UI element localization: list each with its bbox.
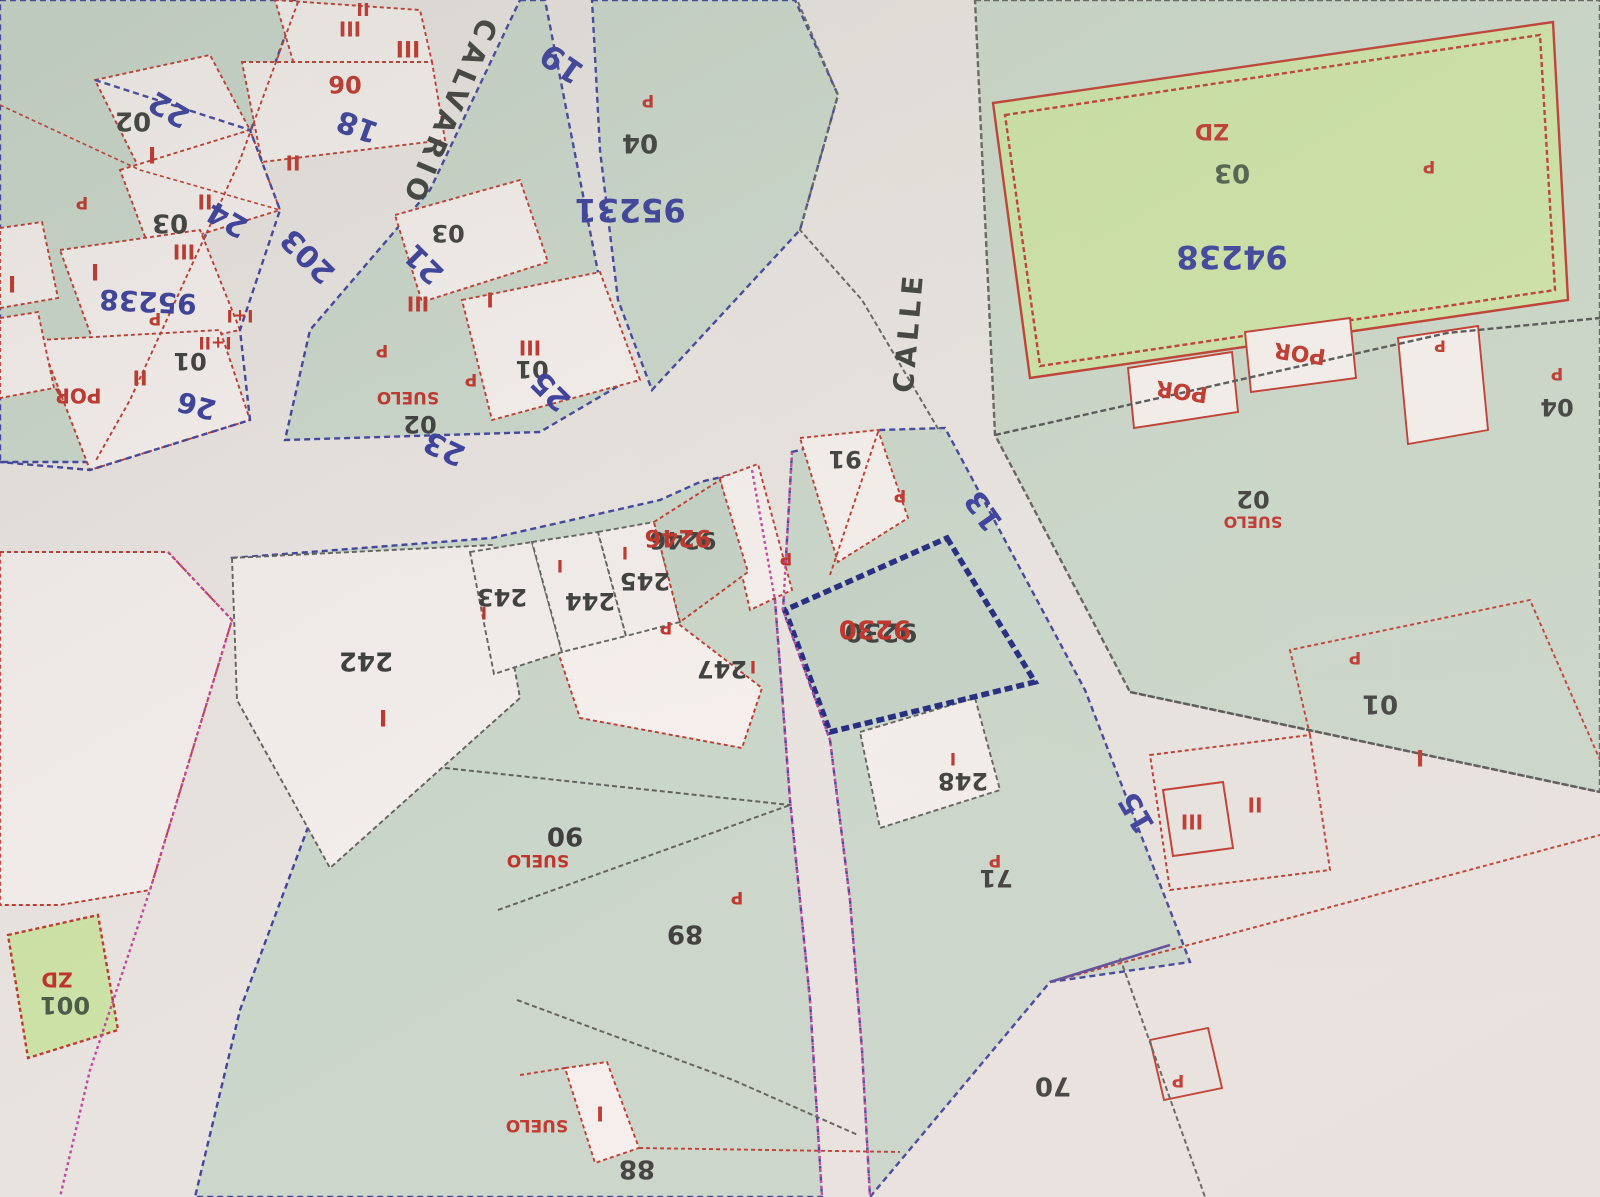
label-94238: 94238	[1176, 238, 1287, 276]
label-06: 06	[328, 70, 361, 98]
label-03: 03	[152, 208, 188, 238]
label-i: I	[950, 748, 956, 768]
label-i: I	[750, 656, 756, 676]
label-244: 244	[565, 587, 615, 615]
label-70: 70	[1035, 1071, 1071, 1101]
label-03: 03	[431, 219, 464, 247]
label-ii: II	[356, 0, 369, 19]
label-p: P	[465, 369, 477, 389]
label-89: 89	[667, 919, 703, 949]
label-01: 01	[1362, 689, 1398, 719]
label-02: 02	[1236, 485, 1269, 513]
label-95238: 95238	[98, 282, 197, 320]
label-i: I	[596, 1102, 603, 1126]
label-p: P	[660, 617, 672, 637]
label-i: I	[557, 555, 563, 575]
label-i: I	[622, 542, 628, 562]
label-i+ii: I+II	[198, 332, 231, 352]
label-p: P	[1434, 337, 1446, 356]
label-i: I	[486, 288, 493, 312]
label-9246: 9246	[645, 524, 712, 552]
label-por: POR	[54, 384, 101, 408]
label-ii: II	[133, 366, 148, 390]
label-i: I	[8, 270, 16, 295]
label-i+i: I+I	[227, 305, 254, 325]
label-i: I	[481, 602, 487, 622]
label-p: P	[376, 340, 388, 360]
label-88: 88	[619, 1154, 655, 1184]
label-p: P	[731, 887, 743, 907]
cadastral-map-photo: 02I2203IIIIIII95238PP01I+II+IIIIPOR26II2…	[0, 0, 1600, 1197]
label-suelo: SUELO	[506, 1115, 568, 1135]
label-9230: 9230	[839, 614, 911, 644]
label-iii: III	[173, 240, 195, 264]
label-91: 91	[828, 445, 861, 473]
label-p: P	[894, 485, 906, 505]
label-95231: 95231	[574, 191, 685, 229]
label-p: P	[149, 308, 161, 328]
label-i: I	[91, 258, 99, 283]
label-i: I	[148, 141, 156, 166]
label-p: P	[76, 192, 88, 212]
label-suelo: SUELO	[507, 850, 569, 870]
label-248: 248	[938, 767, 988, 795]
label-71: 71	[979, 864, 1012, 892]
map-canvas: 02I2203IIIIIII95238PP01I+II+IIIIPOR26II2…	[0, 0, 1600, 1197]
building-70	[1150, 1028, 1222, 1100]
label-suelo: SUELO	[377, 387, 439, 407]
label-04: 04	[622, 128, 658, 158]
label-calle: CALLE	[887, 270, 931, 394]
label-p: P	[780, 548, 792, 568]
label-p: P	[1349, 647, 1361, 667]
label-iii: III	[1181, 810, 1203, 834]
label-245: 245	[620, 567, 670, 595]
se-gray-line-70	[1120, 958, 1205, 1197]
label-zd: ZD	[1195, 118, 1229, 143]
left-parcels-block	[0, 552, 232, 905]
label-iii: III	[407, 292, 429, 316]
label-p: P	[1551, 363, 1563, 383]
label-203: 203	[274, 221, 343, 290]
label-iii: III	[339, 17, 361, 41]
label-04: 04	[1540, 393, 1573, 421]
label-90: 90	[547, 821, 583, 851]
label-suelo: SUELO	[1224, 513, 1283, 532]
label-03: 03	[1214, 158, 1250, 188]
label-zd: ZD	[41, 968, 72, 992]
label-p: P	[1172, 1070, 1184, 1090]
label-ii: II	[286, 151, 301, 175]
label-247: 247	[697, 655, 747, 683]
label-i: I	[1416, 744, 1424, 769]
label-242: 242	[339, 646, 393, 676]
label-p: P	[642, 90, 654, 110]
label-001: 001	[40, 991, 90, 1019]
label-ii: II	[1248, 793, 1263, 817]
label-p: P	[1423, 156, 1435, 176]
label-iii: III	[396, 35, 421, 60]
label-i: I	[379, 704, 387, 729]
right-red-rect-big	[1150, 735, 1330, 890]
